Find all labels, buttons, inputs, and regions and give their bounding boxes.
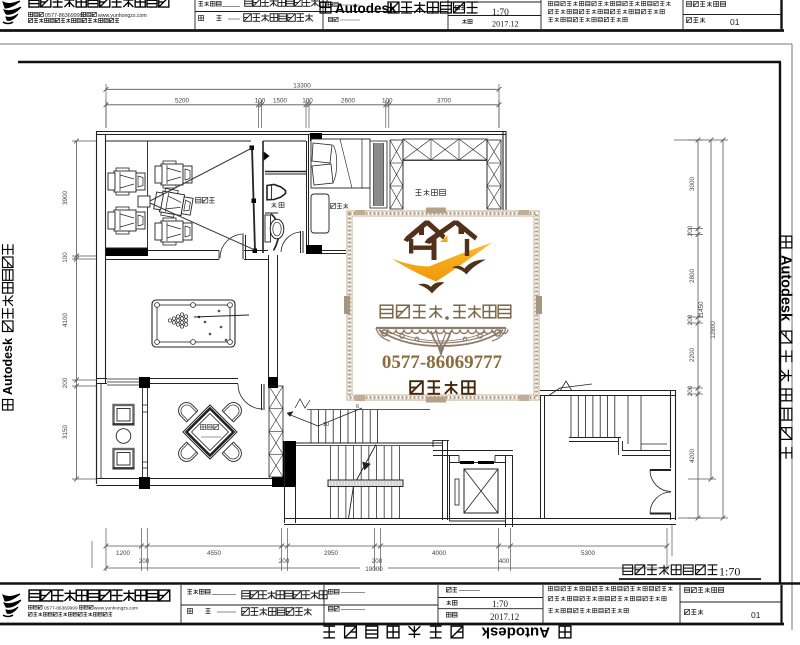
svg-text:1500: 1500: [273, 97, 288, 104]
svg-text:Autodesk: Autodesk: [1, 338, 15, 395]
svg-text:100: 100: [382, 97, 393, 104]
svg-text:6: 6: [356, 404, 359, 410]
svg-text:01: 01: [751, 610, 761, 620]
svg-text:19000: 19000: [365, 566, 383, 573]
svg-text:100: 100: [255, 97, 266, 104]
svg-text:200: 200: [139, 558, 150, 565]
svg-text:4200: 4200: [689, 449, 696, 464]
svg-text:01: 01: [730, 17, 740, 27]
svg-text:0577-86069777: 0577-86069777: [382, 352, 503, 373]
svg-text:2200: 2200: [689, 348, 696, 363]
svg-text:1:70: 1:70: [719, 565, 740, 579]
svg-text:1:70: 1:70: [492, 599, 509, 609]
svg-text:3700: 3700: [437, 97, 452, 104]
svg-text:5200: 5200: [175, 97, 190, 104]
svg-text:1200: 1200: [116, 550, 131, 557]
svg-text:200: 200: [687, 225, 694, 236]
svg-text:12800: 12800: [710, 321, 717, 339]
svg-text:200: 200: [62, 377, 69, 388]
svg-text:2017.12: 2017.12: [490, 612, 519, 622]
svg-text:5300: 5300: [581, 550, 596, 557]
svg-text:100: 100: [302, 97, 313, 104]
svg-text:10: 10: [323, 422, 329, 428]
svg-text:2950: 2950: [324, 550, 339, 557]
svg-text:2017.12: 2017.12: [492, 20, 519, 29]
svg-text:200: 200: [372, 558, 383, 565]
svg-text:1:70: 1:70: [492, 8, 509, 18]
svg-text:4000: 4000: [432, 550, 447, 557]
svg-text:3000: 3000: [689, 177, 696, 192]
svg-text:3900: 3900: [62, 191, 69, 206]
svg-text:2600: 2600: [341, 97, 356, 104]
svg-text:2800: 2800: [689, 269, 696, 284]
svg-text:100: 100: [62, 252, 69, 263]
svg-text:4550: 4550: [207, 550, 222, 557]
svg-text:200: 200: [279, 558, 290, 565]
svg-text:200: 200: [687, 314, 694, 325]
svg-text:Autodesk: Autodesk: [481, 624, 550, 641]
svg-text:200: 200: [687, 385, 694, 396]
svg-text:Autodesk: Autodesk: [778, 255, 794, 322]
svg-text:11450: 11450: [698, 301, 705, 319]
svg-text:400: 400: [499, 558, 510, 565]
svg-text:4100: 4100: [62, 313, 69, 328]
svg-text:www.yunhongzs.com: www.yunhongzs.com: [94, 606, 138, 611]
svg-text:13300: 13300: [293, 83, 311, 90]
svg-text:3150: 3150: [62, 425, 69, 440]
svg-text:0577-86369999: 0577-86369999: [44, 606, 78, 612]
